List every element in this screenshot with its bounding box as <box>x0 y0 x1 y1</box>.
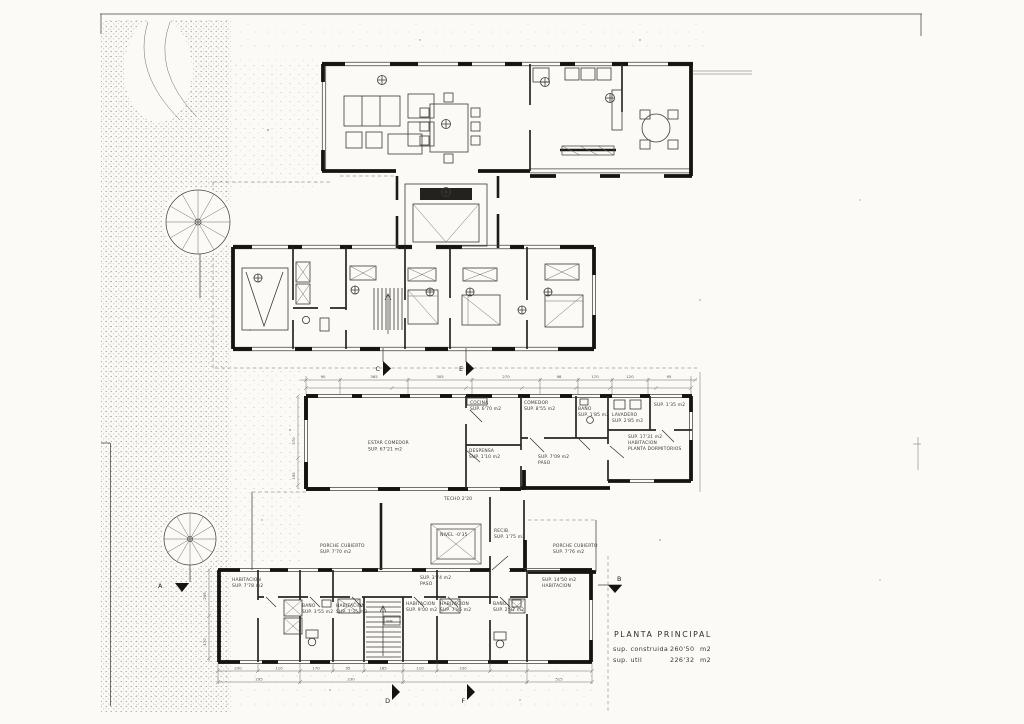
living-room-furniture <box>344 93 480 163</box>
section-marker-b: B <box>617 575 621 583</box>
room-label-despensa: DESPENSASUP. 1'10 m2 <box>469 448 500 460</box>
dim-value: 305 <box>436 374 444 379</box>
section-marker-d: D <box>385 697 390 705</box>
dim-value: 110 <box>275 666 283 671</box>
stairs-label: SUB. <box>386 620 394 624</box>
room-label-aseo: SUP. 1'35 m2 <box>654 402 685 408</box>
area-construida-unit: m2 <box>700 645 711 653</box>
room-label-habitacion-2: HABITACIONSUP. 7'35 m2 <box>336 603 367 615</box>
dim-value: 230 <box>347 677 355 682</box>
area-construida-value: 260'50 <box>670 645 695 653</box>
dim-value: 195 <box>291 472 296 480</box>
dim-value: 185 <box>379 666 387 671</box>
room-label-porche-izq: PORCHE CUBIERTOSUP. 7'70 m2 <box>320 543 365 555</box>
dim-value: 230 <box>459 666 467 671</box>
room-label-habitacion-5: SUP. 14'50 m2HABITACION <box>542 577 576 589</box>
room-label-paso: SUP. 7'09 m2PASO <box>538 454 569 466</box>
area-util-label: sup. util <box>613 656 642 664</box>
lower-plan: SUB. HABITACIONSUP. 7'78 m2 BAÑOSUP. 3'5… <box>202 556 594 684</box>
middle-plan: 90 365 305 270 98 170 120 95 570 195 EST… <box>291 374 697 502</box>
dim-value: 295 <box>202 592 207 600</box>
dim-value: 110 <box>416 666 424 671</box>
ceiling-light-symbols <box>378 76 615 129</box>
label-techo: TECHO 2'20 <box>443 496 472 502</box>
section-marker-e: E <box>459 365 463 373</box>
section-marker-c: C <box>376 365 381 373</box>
dim-value: 365 <box>370 374 378 379</box>
area-construida-label: sup. construida <box>613 645 668 653</box>
dim-value: 170 <box>202 638 207 646</box>
upper-plan-bedroom-wing <box>233 243 596 351</box>
upper-plan-living-wing <box>322 62 752 176</box>
section-marker-a: A <box>158 582 163 590</box>
connector-zone: PORCHE CUBIERTOSUP. 7'70 m2 NIVEL -0'35 … <box>252 492 598 572</box>
dim-value: 295 <box>255 677 263 682</box>
dim-value: 95 <box>667 374 672 379</box>
dim-value: 90 <box>321 374 326 379</box>
dim-value: 270 <box>502 374 510 379</box>
dim-value: 170 <box>591 374 599 379</box>
dim-value: 570 <box>291 437 296 445</box>
room-label-lavadero: LAVADEROSUP. 2'85 m2 <box>612 412 643 424</box>
dim-value: 95 <box>346 666 351 671</box>
dim-value: 98 <box>557 374 562 379</box>
kitchen-furniture <box>533 68 678 149</box>
floor-plan-sheet: 90 365 305 270 98 170 120 95 570 195 EST… <box>0 0 1024 724</box>
room-label-habitacion-dormitorios: SUP. 17'31 m2HABITACIONPLANTA DORMITORIO… <box>628 434 682 452</box>
room-label-bano-1: BAÑOSUP. 3'55 m2 <box>302 602 333 615</box>
room-label-estar-comedor: ESTAR COMEDORSUP. 67'21 m2 <box>368 440 409 453</box>
dim-value: 120 <box>626 374 634 379</box>
dim-value: 170 <box>312 666 320 671</box>
room-label-habitacion-4: HABITACIONSUP. 7'85 m2 <box>440 601 471 613</box>
area-util-unit: m2 <box>700 656 711 664</box>
room-label-porche-der: PORCHE CUBIERTOSUP. 7'76 m2 <box>553 543 598 555</box>
room-label-habitacion-3: HABITACIONSUP. 9'00 m2 <box>406 601 437 613</box>
section-marker-f: F <box>461 697 465 705</box>
title-block: PLANTA PRINCIPAL sup. construida 260'50 … <box>613 630 712 664</box>
room-label-comedor: COMEDORSUP. 8'55 m2 <box>524 400 555 412</box>
upper-plan-center-room <box>397 176 498 248</box>
dim-value: 515 <box>555 677 563 682</box>
dim-value: 230 <box>234 666 242 671</box>
area-util-value: 226'32 <box>670 656 695 664</box>
room-label-bano: BAÑOSUP. 1'85 m2 <box>578 405 609 418</box>
sheet-title: PLANTA PRINCIPAL <box>614 630 712 639</box>
room-label-paso: SUP. 3'74 m2PASO <box>420 575 451 587</box>
room-label-cocina: COCINASUP. 6'70 m2 <box>470 400 501 412</box>
room-label-recibidor: RECIB.SUP. 1'75 m2 <box>494 528 525 540</box>
label-nivel: NIVEL -0'35 <box>440 532 468 538</box>
